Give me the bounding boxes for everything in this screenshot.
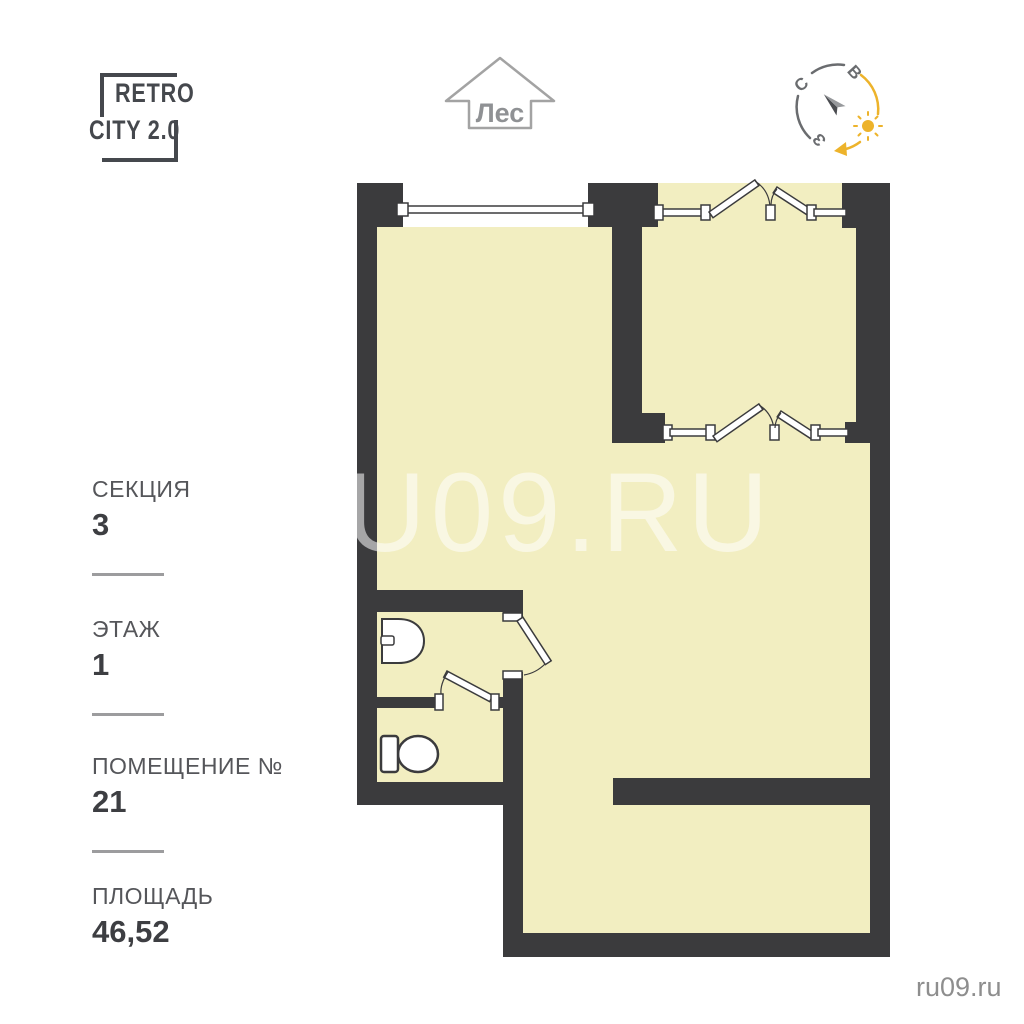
divider <box>92 573 164 576</box>
area-value: 46,52 <box>92 914 213 950</box>
wall <box>377 697 437 708</box>
door-jamb <box>503 671 522 679</box>
door-jamb <box>435 694 443 710</box>
sun-path-arrowhead-icon <box>834 142 847 156</box>
window-segment <box>818 429 848 436</box>
wall <box>503 672 523 957</box>
wall <box>856 228 890 422</box>
site-name: ru09.ru <box>916 972 1002 1003</box>
forest-direction-arrow-icon: Лес <box>444 56 556 130</box>
info-item-floor: ЭТАЖ 1 <box>92 616 164 716</box>
compass-dark-arc <box>797 65 844 138</box>
compass-needle-icon <box>819 90 845 116</box>
logo-line1: RETRO <box>115 78 195 109</box>
wall <box>499 697 523 708</box>
sun-icon <box>854 112 882 140</box>
floor-value: 1 <box>92 647 164 683</box>
forest-label: Лес <box>476 98 525 128</box>
wall <box>845 422 890 443</box>
unit-number-label: ПОМЕЩЕНИЕ № <box>92 753 283 780</box>
compass-east-label: В <box>843 61 865 83</box>
wall <box>612 227 642 443</box>
compass-north-label: С <box>790 73 812 95</box>
floor-label: ЭТАЖ <box>92 616 164 643</box>
wall <box>357 782 523 805</box>
wall <box>588 183 658 227</box>
floorplan-page: RETRO CITY 2.0 Лес С В З <box>0 0 1024 1024</box>
wall <box>357 183 403 227</box>
section-value: 3 <box>92 507 191 543</box>
wall <box>503 933 890 957</box>
wall <box>377 590 523 612</box>
wall <box>870 443 890 957</box>
logo-line2: CITY 2.0 <box>89 115 180 146</box>
sink-icon <box>381 619 424 663</box>
window-segment <box>661 209 703 216</box>
window-segment <box>814 209 846 216</box>
divider <box>92 850 164 853</box>
wall <box>842 183 890 228</box>
info-item-section: СЕКЦИЯ 3 <box>92 476 191 576</box>
compass-west-label: З <box>809 129 830 150</box>
unit-number-value: 21 <box>92 784 283 820</box>
retro-city-logo: RETRO CITY 2.0 <box>88 70 188 162</box>
window-jamb <box>654 205 663 220</box>
wall <box>613 778 870 805</box>
divider <box>92 713 164 716</box>
compass-icon: С В З <box>786 44 902 166</box>
door-jamb <box>766 205 775 220</box>
wall <box>357 183 377 805</box>
info-item-unit-number: ПОМЕЩЕНИЕ № 21 <box>92 753 283 853</box>
info-item-area: ПЛОЩАДЬ 46,52 <box>92 883 213 950</box>
section-label: СЕКЦИЯ <box>92 476 191 503</box>
compass-sun-path-arc <box>846 75 878 149</box>
wall <box>642 413 665 443</box>
window-top-left <box>397 183 594 227</box>
toilet-icon <box>381 736 438 772</box>
window-segment <box>670 429 708 436</box>
floorplan-drawing <box>340 170 910 970</box>
door-jamb <box>491 694 499 710</box>
outside-area <box>340 805 503 970</box>
area-label: ПЛОЩАДЬ <box>92 883 213 910</box>
